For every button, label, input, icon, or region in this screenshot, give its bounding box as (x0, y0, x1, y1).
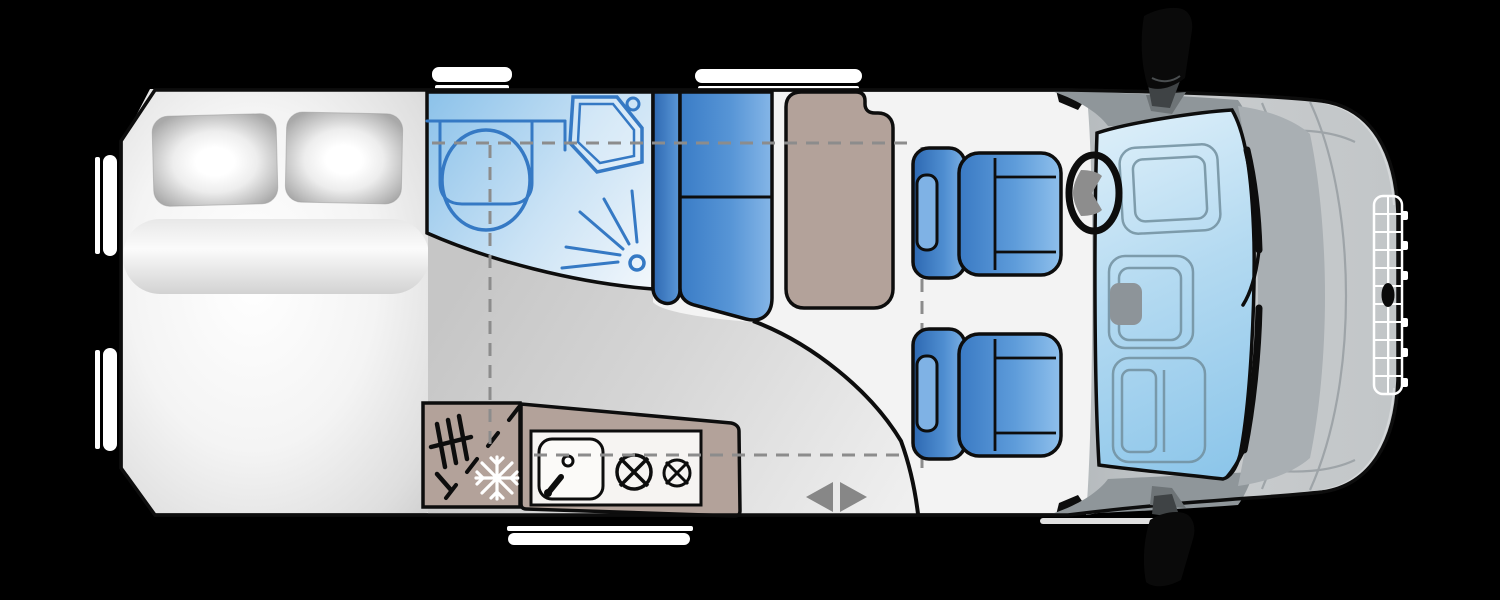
grille-badge (1382, 283, 1395, 307)
bed-area (123, 89, 432, 513)
motorhome-floorplan (0, 0, 1500, 600)
window-strip (95, 350, 100, 449)
bathroom-roof-window (432, 67, 512, 90)
mirror-head-icon (1142, 8, 1193, 89)
dinette-roof-window (695, 69, 862, 91)
window-strip (507, 526, 693, 531)
fridge (423, 403, 520, 507)
pillow (152, 113, 278, 206)
dinette-area (653, 92, 893, 320)
floorplan-canvas (0, 0, 1500, 600)
window-bar (432, 67, 512, 82)
bench-backrest (653, 92, 680, 303)
kitchen-area (423, 403, 740, 516)
seat-armrest (917, 356, 937, 431)
driver-seat (913, 148, 1061, 278)
window-bar (103, 348, 117, 451)
rear-side-window-lower (95, 348, 117, 451)
pillow (285, 112, 403, 204)
door-step-skirt (1040, 518, 1158, 524)
window-bar (103, 155, 117, 256)
faucet-base (544, 489, 552, 497)
windscreen (1095, 110, 1259, 479)
seat-cushion (959, 153, 1061, 275)
window-bar (695, 69, 862, 83)
seat-armrest (917, 175, 937, 250)
window-bar (508, 533, 690, 545)
passenger-seat (913, 329, 1061, 459)
kitchen-window (507, 526, 693, 545)
rear-side-window-upper (95, 155, 117, 256)
dinette-table (786, 92, 893, 308)
bed-bolster (123, 219, 429, 294)
bench-seat (680, 92, 772, 320)
seat-cushion (959, 334, 1061, 456)
steering-column (1110, 283, 1142, 325)
sink-drain-icon (563, 456, 573, 466)
snowflake-icon (476, 457, 518, 499)
window-strip (95, 157, 100, 254)
